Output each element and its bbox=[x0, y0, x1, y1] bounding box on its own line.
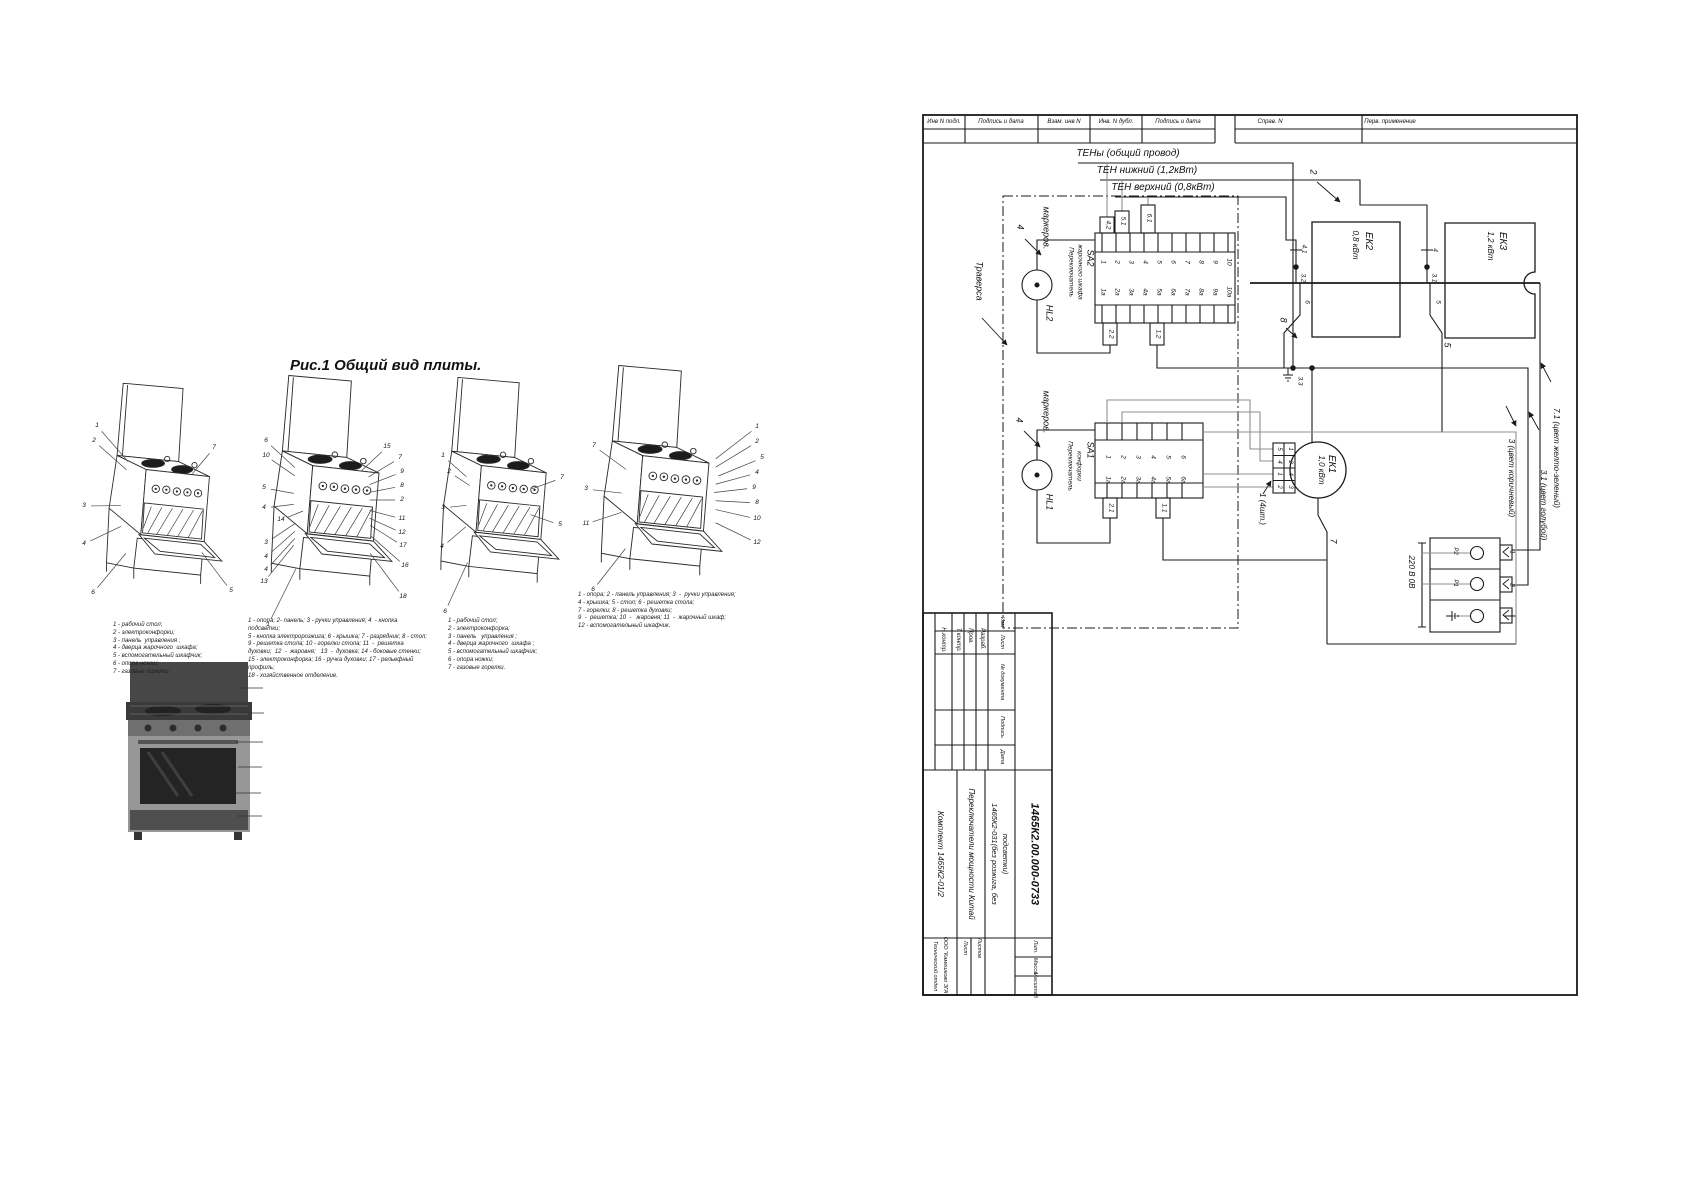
frame-header-cell: Инв N подл. bbox=[927, 119, 960, 125]
figure-callout-number: 9 bbox=[752, 485, 756, 492]
figure-callout-number: 4 bbox=[264, 554, 268, 561]
schematic-label: 5 bbox=[1164, 455, 1171, 459]
figure-callout-number: 17 bbox=[399, 543, 406, 550]
schematic-label: 6.1 bbox=[1145, 213, 1152, 222]
figure-callout-number: 1 bbox=[441, 453, 445, 460]
figure-callout-number: 6 bbox=[264, 438, 268, 445]
schematic-label: 3а bbox=[1127, 288, 1134, 295]
figure-callout-number: 2 bbox=[755, 439, 759, 446]
schematic-label: 4а bbox=[1149, 476, 1156, 483]
title-block-label: Разраб. bbox=[979, 628, 985, 650]
figure-callout-number: 2 bbox=[92, 438, 96, 445]
title-block-label: Комплект 1465К2-01/2 bbox=[936, 811, 944, 897]
schematic-label: 10 bbox=[1225, 258, 1232, 265]
schematic-label: 1 (4шт.) bbox=[1258, 493, 1266, 525]
schematic-label: ТЕНы (общий провод) bbox=[1076, 149, 1179, 159]
frame-header-cell: Перв. применение bbox=[1364, 119, 1416, 125]
figure-legend-1: 1 - рабочий стол; 2 - электроконфорки; 3… bbox=[113, 622, 202, 677]
title-block-label: Т.контр. bbox=[955, 628, 961, 652]
frame-header-cell: Подпись и дата bbox=[978, 119, 1023, 125]
schematic-label: SA1 bbox=[1086, 441, 1095, 458]
schematic-label: 4.1 bbox=[1300, 244, 1307, 253]
schematic-label: 1а bbox=[1099, 288, 1106, 295]
figure-callout-number: 12 bbox=[398, 530, 405, 537]
title-block-label: Пров. bbox=[967, 628, 973, 644]
schematic-label: 3.1 (цвет голубой) bbox=[1539, 470, 1547, 541]
schematic-label: 2 bbox=[1113, 260, 1120, 264]
frame-header-cell: Взам. инв N bbox=[1047, 119, 1080, 125]
figure-callout-number: 9 bbox=[400, 469, 404, 476]
document-page: Рис.1 Общий вид плиты. Инв N подл.Подпис… bbox=[0, 0, 1684, 1190]
figure-callout-number: 12 bbox=[753, 540, 760, 547]
title-block-label: Изм bbox=[998, 617, 1004, 627]
schematic-label: 6а bbox=[1169, 288, 1176, 295]
stove-photo bbox=[126, 662, 252, 840]
schematic-label: жарочного шкафа bbox=[1076, 244, 1083, 299]
figure-callout-number: 10 bbox=[262, 453, 269, 460]
schematic-label: Переключатель bbox=[1067, 247, 1074, 297]
schematic-label: Р1 bbox=[1452, 579, 1458, 586]
schematic-label: 1 bbox=[1508, 550, 1515, 554]
schematic-label: 1,2 кВт bbox=[1486, 231, 1494, 260]
schematic-label: 3.1 bbox=[1430, 273, 1437, 282]
schematic-label: 1а bbox=[1104, 476, 1111, 483]
schematic-label: ЕК3 bbox=[1497, 232, 1507, 250]
figure-callout-number: 18 bbox=[399, 594, 406, 601]
schematic-label: 8а bbox=[1197, 288, 1204, 295]
schematic-label: 9а bbox=[1211, 288, 1218, 295]
schematic-label: 8 bbox=[1197, 260, 1204, 264]
schematic-label: 1 bbox=[1099, 260, 1106, 264]
schematic-label: 6 bbox=[1303, 300, 1310, 304]
schematic bbox=[923, 115, 1577, 995]
schematic-label: 4 bbox=[1016, 224, 1025, 229]
figure-callout-number: 13 bbox=[260, 579, 267, 586]
schematic-label: 5а bbox=[1155, 288, 1162, 295]
figure-callout-number: 2 bbox=[400, 497, 404, 504]
figure-callout-number: 4 bbox=[262, 505, 266, 512]
schematic-label: 2 bbox=[1119, 455, 1126, 459]
schematic-label: HL2 bbox=[1045, 305, 1054, 322]
figure-callout-number: 2 bbox=[447, 469, 451, 476]
title-block-label: Переключатели мощности Китай bbox=[967, 788, 975, 919]
figure-callout-number: 3 bbox=[584, 486, 588, 493]
schematic-label: SA2 bbox=[1086, 249, 1095, 266]
schematic-label: конфорки bbox=[1075, 451, 1082, 481]
schematic-label: 220 В 0В bbox=[1407, 556, 1415, 589]
schematic-label: 3 bbox=[1287, 485, 1293, 488]
schematic-label: маркеров. bbox=[1042, 207, 1051, 250]
schematic-label: 3 bbox=[1134, 455, 1141, 459]
schematic-label: 5а bbox=[1164, 476, 1171, 483]
schematic-label: 2 bbox=[1287, 460, 1293, 463]
frame-header-cell: Справ. N bbox=[1257, 119, 1282, 125]
figure-callout-number: 11 bbox=[399, 516, 406, 523]
figure-callout-number: 7 bbox=[560, 475, 564, 482]
schematic-label: 1 bbox=[1104, 455, 1111, 459]
schematic-label: 1.1 bbox=[1160, 503, 1167, 512]
schematic-label: 5 bbox=[1434, 300, 1441, 304]
figure-callout-number: 4 bbox=[82, 541, 86, 548]
schematic-label: 3 bbox=[1127, 260, 1134, 264]
schematic-label: 7.1 (цвет желто-зеленый) bbox=[1552, 408, 1560, 508]
schematic-label: 2 bbox=[1309, 169, 1318, 174]
schematic-label: 1,0 кВт bbox=[1317, 455, 1325, 484]
figure-callout-number: 7 bbox=[398, 455, 402, 462]
title-block-label: Подпись bbox=[998, 716, 1004, 738]
schematic-label: 4 bbox=[1149, 455, 1156, 459]
title-block-label: Лист bbox=[998, 635, 1004, 649]
schematic-label: 3 (цвет коричневый) bbox=[1507, 439, 1515, 517]
title-block-label: Масштаб bbox=[1031, 972, 1037, 998]
schematic-label: 5 bbox=[1276, 447, 1282, 450]
figure-legend-2: 1 - опора; 2- панель; 3 - ручки управлен… bbox=[248, 618, 427, 680]
figure-callout-number: 5 bbox=[229, 588, 233, 595]
title-block-label: Листов bbox=[975, 938, 981, 958]
frame-header-cell: Инв. N дубл. bbox=[1099, 119, 1134, 125]
line-art bbox=[0, 0, 1684, 1190]
figure-callout-number: 10 bbox=[753, 516, 760, 523]
figure-callout-number: 7 bbox=[212, 445, 216, 452]
title-block-label: 1465К2.00.000-0733 bbox=[1029, 803, 1040, 905]
schematic-label: 1 bbox=[1276, 472, 1282, 475]
schematic-label: 4 bbox=[1141, 260, 1148, 264]
figure-callout-number: 7 bbox=[592, 443, 596, 450]
schematic-label: 9 bbox=[1211, 260, 1218, 264]
stove-figures bbox=[106, 366, 721, 586]
schematic-label: 5 bbox=[1443, 342, 1452, 347]
figure-callout-number: 1 bbox=[755, 424, 759, 431]
schematic-label: ЕК1 bbox=[1326, 455, 1336, 473]
schematic-label: 1.2 bbox=[1154, 329, 1161, 338]
schematic-label: 3.2 bbox=[1299, 273, 1306, 282]
figure-callout-number: 6 bbox=[443, 609, 447, 616]
figure-caption: Рис.1 Общий вид плиты. bbox=[290, 357, 550, 374]
schematic-label: 0,8 кВт bbox=[1351, 230, 1359, 259]
figure-callout-number: 11 bbox=[583, 521, 590, 528]
figure-callout-number: 8 bbox=[400, 483, 404, 490]
schematic-label: 4 bbox=[1015, 417, 1024, 422]
schematic-label: 3а bbox=[1134, 476, 1141, 483]
schematic-label: 2 bbox=[1508, 583, 1515, 587]
schematic-label: 7а bbox=[1183, 288, 1190, 295]
title-block-label: Технический отдел bbox=[931, 941, 937, 991]
figure-callout-number: 1 bbox=[95, 423, 99, 430]
figure-callout-number: 3 bbox=[441, 505, 445, 512]
frame-header-cell: Подпись и дата bbox=[1155, 119, 1200, 125]
title-block-label: Лист bbox=[961, 941, 967, 955]
schematic-label: 7 bbox=[1183, 260, 1190, 264]
schematic-label: Переключатель bbox=[1066, 441, 1073, 491]
schematic-label: 4 bbox=[1287, 472, 1293, 475]
figure-callout-number: 4 bbox=[440, 544, 444, 551]
title-block-label: 1465К2-031(без розжига, без bbox=[990, 803, 998, 904]
figure-callout-number: 3 bbox=[264, 540, 268, 547]
figure-legend-4: 1 - опора; 2 - панель управления; 3 - ру… bbox=[578, 592, 736, 631]
schematic-label: 2.1 bbox=[1107, 503, 1114, 512]
schematic-label: 2а bbox=[1119, 476, 1126, 483]
figure-legend-3: 1 - рабочий стол; 2 - электроконфорка; 3… bbox=[448, 618, 537, 673]
schematic-label: 8 bbox=[1279, 317, 1288, 322]
schematic-label: 7 bbox=[1329, 538, 1338, 543]
figure-callout-number: 8 bbox=[755, 500, 759, 507]
schematic-label: 4а bbox=[1141, 288, 1148, 295]
figure-callout-number: 5 bbox=[760, 455, 764, 462]
schematic-label: HL1 bbox=[1045, 494, 1054, 511]
figure-callout-number: 4 bbox=[755, 470, 759, 477]
schematic-label: 4.2 bbox=[1104, 220, 1111, 229]
schematic-label: 6 bbox=[1169, 260, 1176, 264]
schematic-label: 6 bbox=[1179, 455, 1186, 459]
figure-callout-number: 16 bbox=[401, 563, 408, 570]
figure-callout-number: 15 bbox=[383, 444, 390, 451]
schematic-label: Траверса bbox=[975, 261, 984, 300]
schematic-label: 4 bbox=[1431, 248, 1438, 252]
figure-callout-number: 5 bbox=[558, 522, 562, 529]
schematic-label: маркеров. bbox=[1042, 391, 1051, 434]
title-block-label: Лит. bbox=[1031, 941, 1037, 954]
schematic-label: 3.3 bbox=[1296, 376, 1303, 385]
figure-callout-number: 6 bbox=[91, 590, 95, 597]
schematic-label: ТЕН верхний (0,8кВт) bbox=[1111, 183, 1214, 193]
schematic-label: 1 bbox=[1287, 447, 1293, 450]
figure-callout-number: 3 bbox=[82, 503, 86, 510]
title-block-label: № документа bbox=[998, 664, 1004, 700]
schematic-label: 2а bbox=[1113, 288, 1120, 295]
figure-callout-number: 4 bbox=[264, 567, 268, 574]
schematic-label: 5.1 bbox=[1119, 216, 1126, 225]
schematic-label: ТЕН нижний (1,2кВт) bbox=[1097, 166, 1197, 176]
schematic-label: 5 bbox=[1155, 260, 1162, 264]
schematic-label: 4 bbox=[1276, 460, 1282, 463]
schematic-label: 2 bbox=[1276, 485, 1282, 488]
schematic-label: Р2 bbox=[1452, 547, 1458, 554]
schematic-label: 2.2 bbox=[1107, 329, 1114, 338]
title-block-label: ООО "Камешково ЗГА" bbox=[941, 937, 947, 996]
title-block-label: Дата bbox=[998, 750, 1004, 765]
title-block-label: подсветки) bbox=[1001, 834, 1009, 875]
figure-callout-number: 5 bbox=[262, 485, 266, 492]
figure-callout-number: 14 bbox=[277, 517, 284, 524]
title-block-label: Н.контр. bbox=[940, 627, 946, 652]
schematic-label: 6а bbox=[1179, 476, 1186, 483]
schematic-label: 10а bbox=[1225, 287, 1232, 298]
schematic-label: ЕК2 bbox=[1363, 232, 1373, 250]
